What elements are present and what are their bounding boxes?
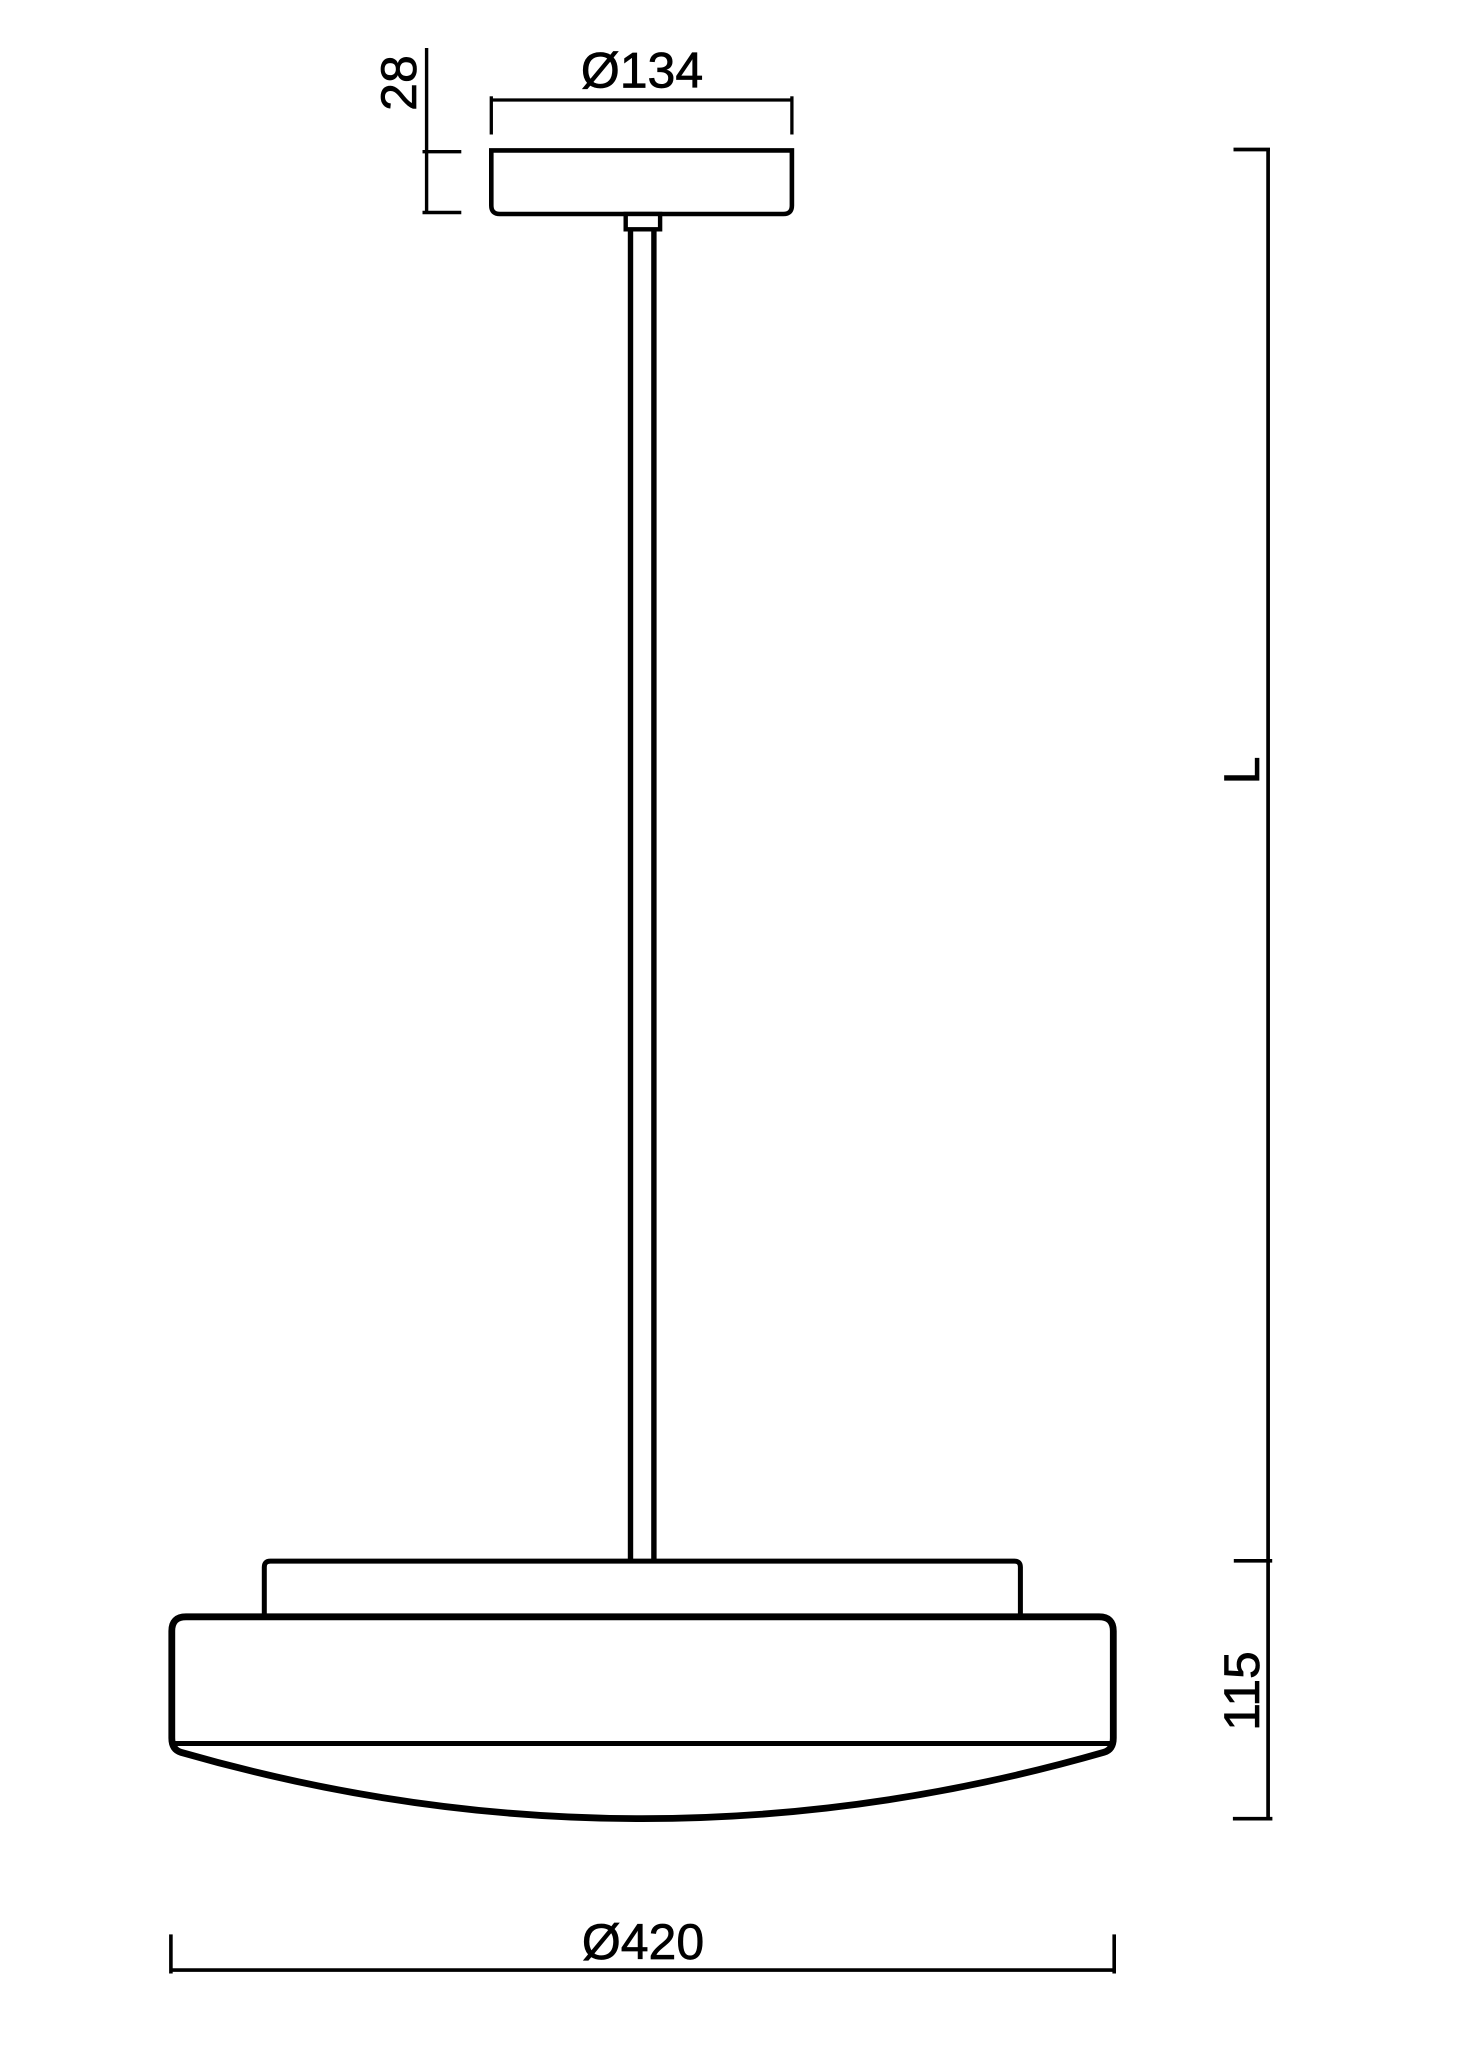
svg-text:Ø134: Ø134	[581, 43, 703, 99]
svg-text:28: 28	[371, 55, 427, 111]
svg-text:115: 115	[1214, 1651, 1270, 1731]
svg-text:L: L	[1214, 757, 1270, 785]
svg-text:Ø420: Ø420	[582, 1914, 704, 1970]
